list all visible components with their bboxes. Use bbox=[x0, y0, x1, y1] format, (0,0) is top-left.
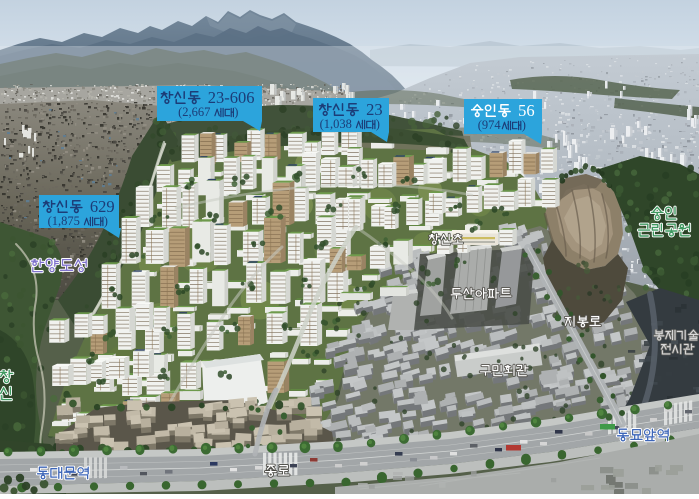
svg-text:23: 23 bbox=[366, 100, 383, 119]
svg-text:(1,038: (1,038 bbox=[320, 117, 352, 131]
svg-text:): ) bbox=[104, 214, 108, 228]
svg-text:23-606: 23-606 bbox=[208, 88, 255, 107]
svg-text:(974: (974 bbox=[478, 118, 502, 132]
svg-text:): ) bbox=[234, 105, 238, 119]
svg-text:56: 56 bbox=[518, 101, 535, 120]
svg-text:(1,875: (1,875 bbox=[48, 214, 80, 228]
svg-text:): ) bbox=[376, 117, 380, 131]
svg-text:629: 629 bbox=[90, 197, 115, 216]
svg-text:(2,667: (2,667 bbox=[178, 105, 210, 119]
svg-text:): ) bbox=[522, 118, 526, 132]
